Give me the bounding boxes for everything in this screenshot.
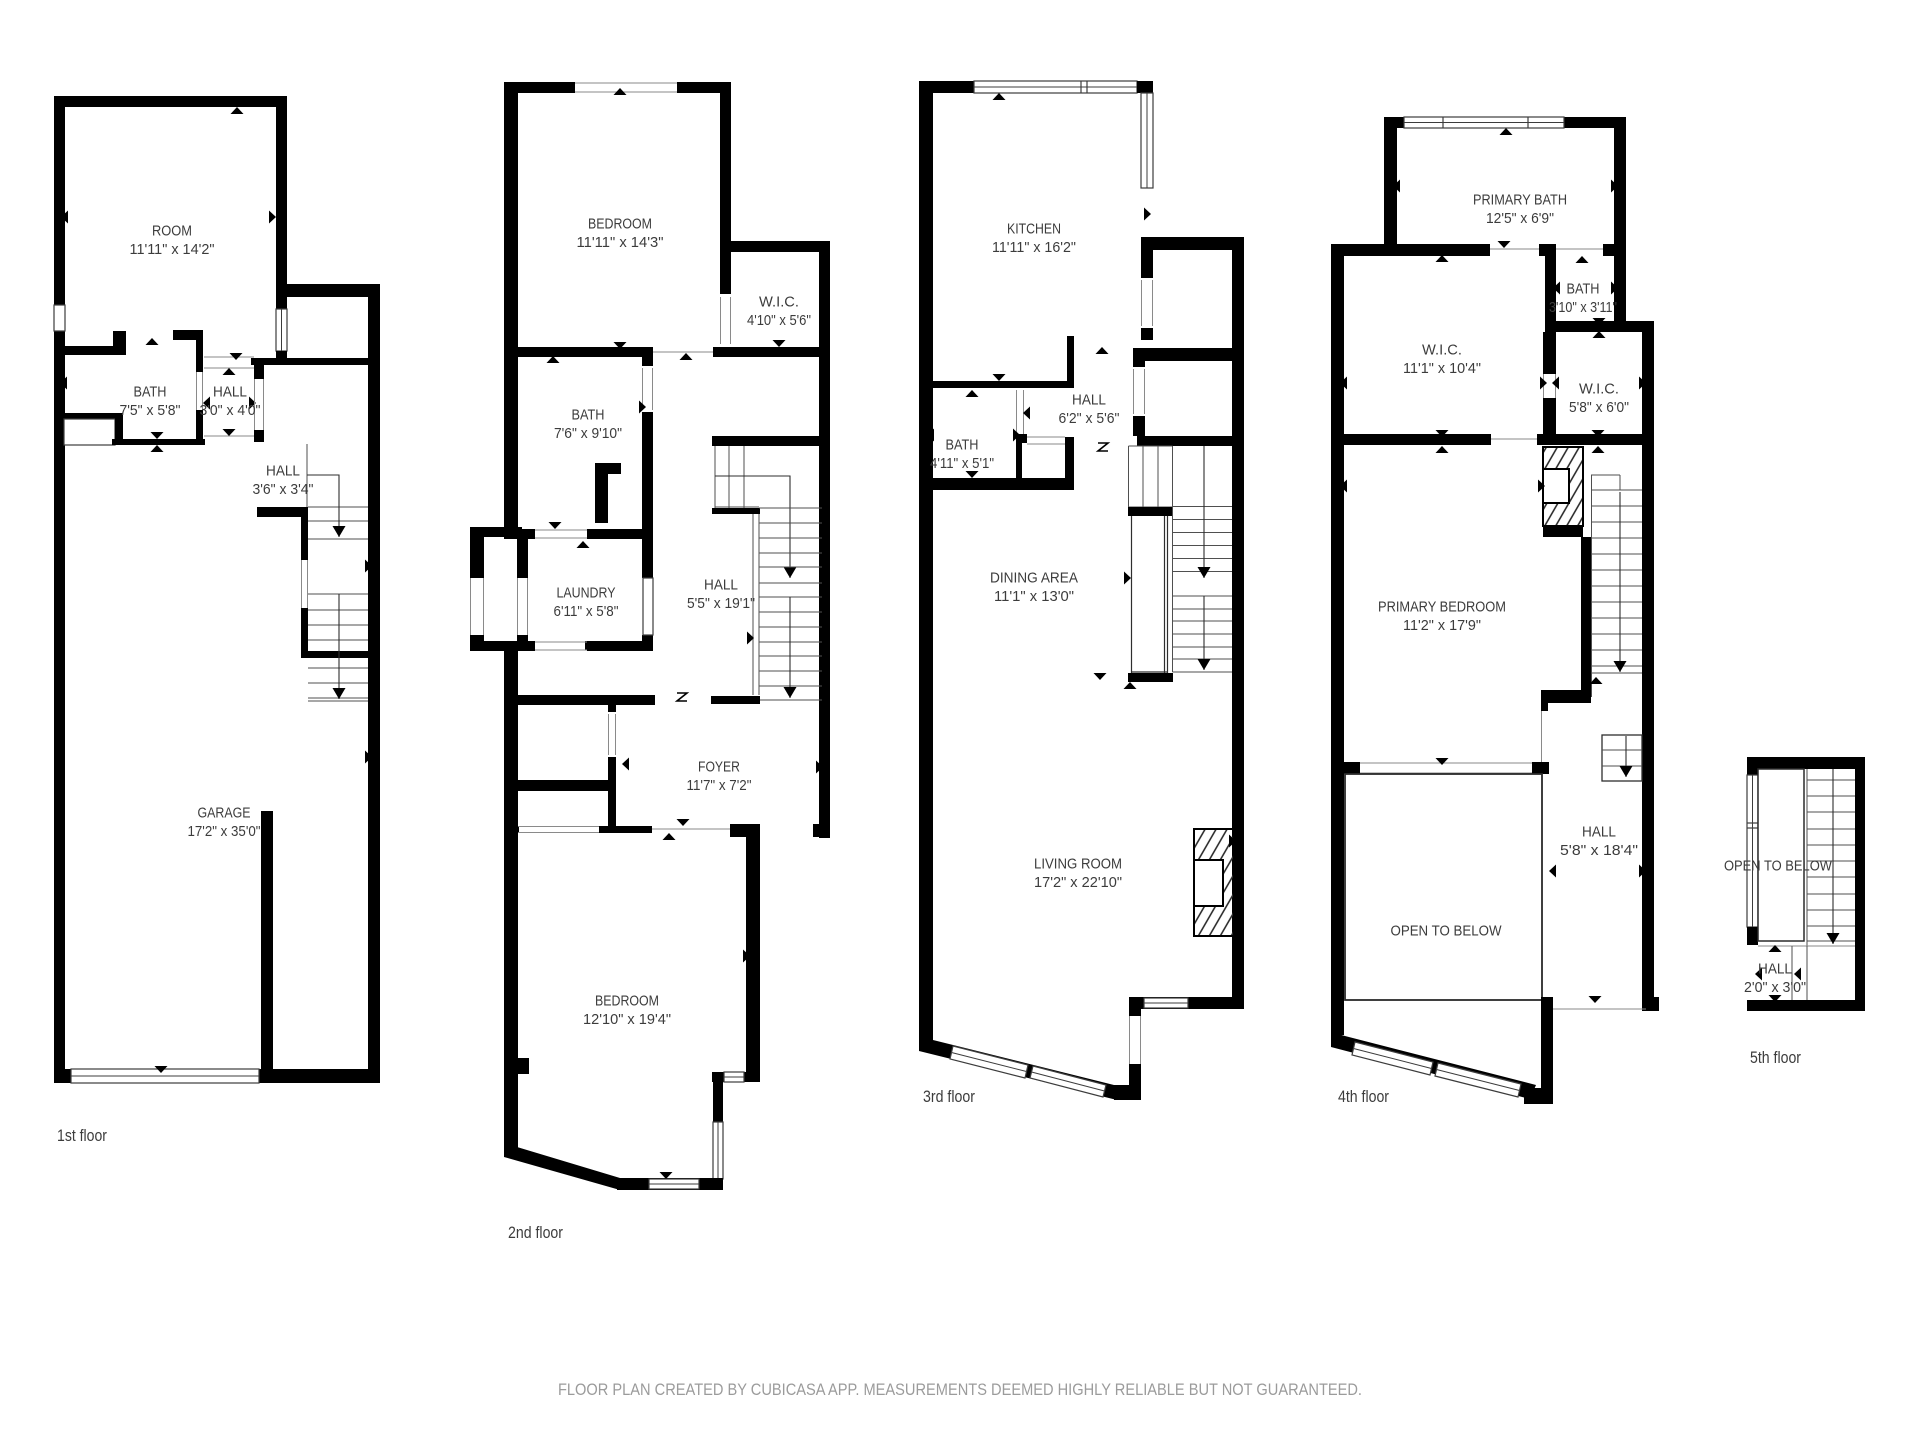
svg-text:LAUNDRY: LAUNDRY bbox=[557, 584, 616, 601]
svg-text:5'5" x 19'1": 5'5" x 19'1" bbox=[687, 595, 755, 612]
svg-text:BATH: BATH bbox=[946, 436, 979, 453]
svg-text:W.I.C.: W.I.C. bbox=[1579, 380, 1619, 397]
svg-text:11'7" x 7'2": 11'7" x 7'2" bbox=[687, 777, 752, 794]
svg-text:5'8" x 6'0": 5'8" x 6'0" bbox=[1569, 399, 1629, 416]
svg-text:11'2" x 17'9": 11'2" x 17'9" bbox=[1403, 617, 1481, 634]
svg-text:11'1" x 10'4": 11'1" x 10'4" bbox=[1403, 360, 1481, 377]
svg-text:KITCHEN: KITCHEN bbox=[1007, 220, 1061, 237]
svg-text:3'10" x 3'11": 3'10" x 3'11" bbox=[1549, 299, 1617, 316]
svg-text:HALL: HALL bbox=[1072, 391, 1106, 408]
svg-text:LIVING ROOM: LIVING ROOM bbox=[1034, 855, 1122, 872]
svg-text:FLOOR PLAN CREATED BY CUBICASA: FLOOR PLAN CREATED BY CUBICASA APP. MEAS… bbox=[558, 1380, 1362, 1399]
svg-text:4'10" x 5'6": 4'10" x 5'6" bbox=[747, 312, 811, 329]
svg-text:PRIMARY BEDROOM: PRIMARY BEDROOM bbox=[1378, 598, 1506, 615]
svg-text:HALL: HALL bbox=[704, 576, 738, 593]
svg-text:BATH: BATH bbox=[1567, 280, 1600, 297]
svg-text:5th floor: 5th floor bbox=[1750, 1049, 1801, 1067]
svg-text:DINING AREA: DINING AREA bbox=[990, 569, 1078, 586]
svg-text:HALL: HALL bbox=[1582, 823, 1616, 840]
svg-text:17'2" x 35'0": 17'2" x 35'0" bbox=[188, 823, 261, 840]
svg-text:6'11" x 5'8": 6'11" x 5'8" bbox=[554, 603, 619, 620]
svg-text:6'2" x 5'6": 6'2" x 5'6" bbox=[1059, 410, 1120, 427]
svg-text:2'0" x 3'0": 2'0" x 3'0" bbox=[1744, 979, 1806, 996]
svg-text:7'6" x 9'10": 7'6" x 9'10" bbox=[554, 425, 622, 442]
svg-text:OPEN TO BELOW: OPEN TO BELOW bbox=[1724, 857, 1833, 874]
svg-text:11'11" x 14'3": 11'11" x 14'3" bbox=[577, 234, 664, 251]
svg-text:PRIMARY BATH: PRIMARY BATH bbox=[1473, 191, 1567, 208]
svg-text:11'1" x 13'0": 11'1" x 13'0" bbox=[994, 588, 1074, 605]
svg-text:3'0" x 4'0": 3'0" x 4'0" bbox=[200, 402, 261, 419]
svg-text:5'8" x 18'4": 5'8" x 18'4" bbox=[1560, 842, 1638, 859]
svg-text:OPEN TO BELOW: OPEN TO BELOW bbox=[1391, 922, 1503, 939]
svg-text:17'2" x 22'10": 17'2" x 22'10" bbox=[1034, 874, 1122, 891]
svg-text:W.I.C.: W.I.C. bbox=[1422, 341, 1462, 358]
svg-text:BATH: BATH bbox=[134, 383, 167, 400]
svg-text:4'11" x 5'1": 4'11" x 5'1" bbox=[930, 455, 994, 472]
svg-text:11'11" x 14'2": 11'11" x 14'2" bbox=[130, 241, 215, 258]
svg-text:11'11" x 16'2": 11'11" x 16'2" bbox=[992, 239, 1076, 256]
svg-text:12'10" x 19'4": 12'10" x 19'4" bbox=[583, 1011, 671, 1028]
svg-text:BEDROOM: BEDROOM bbox=[595, 992, 659, 1009]
svg-text:BATH: BATH bbox=[572, 406, 605, 423]
svg-text:HALL: HALL bbox=[213, 383, 247, 400]
svg-text:4th floor: 4th floor bbox=[1338, 1088, 1389, 1106]
svg-text:BEDROOM: BEDROOM bbox=[588, 215, 652, 232]
svg-text:HALL: HALL bbox=[1758, 960, 1792, 977]
svg-text:3'6" x 3'4": 3'6" x 3'4" bbox=[253, 481, 314, 498]
svg-text:HALL: HALL bbox=[266, 462, 300, 479]
svg-text:GARAGE: GARAGE bbox=[198, 804, 251, 821]
svg-text:ROOM: ROOM bbox=[152, 222, 192, 239]
svg-text:3rd floor: 3rd floor bbox=[923, 1088, 975, 1106]
svg-text:2nd floor: 2nd floor bbox=[508, 1224, 563, 1242]
svg-text:7'5" x 5'8": 7'5" x 5'8" bbox=[120, 402, 181, 419]
svg-text:1st floor: 1st floor bbox=[57, 1127, 107, 1145]
svg-text:12'5" x 6'9": 12'5" x 6'9" bbox=[1486, 210, 1554, 227]
svg-text:FOYER: FOYER bbox=[698, 758, 740, 775]
svg-text:W.I.C.: W.I.C. bbox=[759, 293, 799, 310]
